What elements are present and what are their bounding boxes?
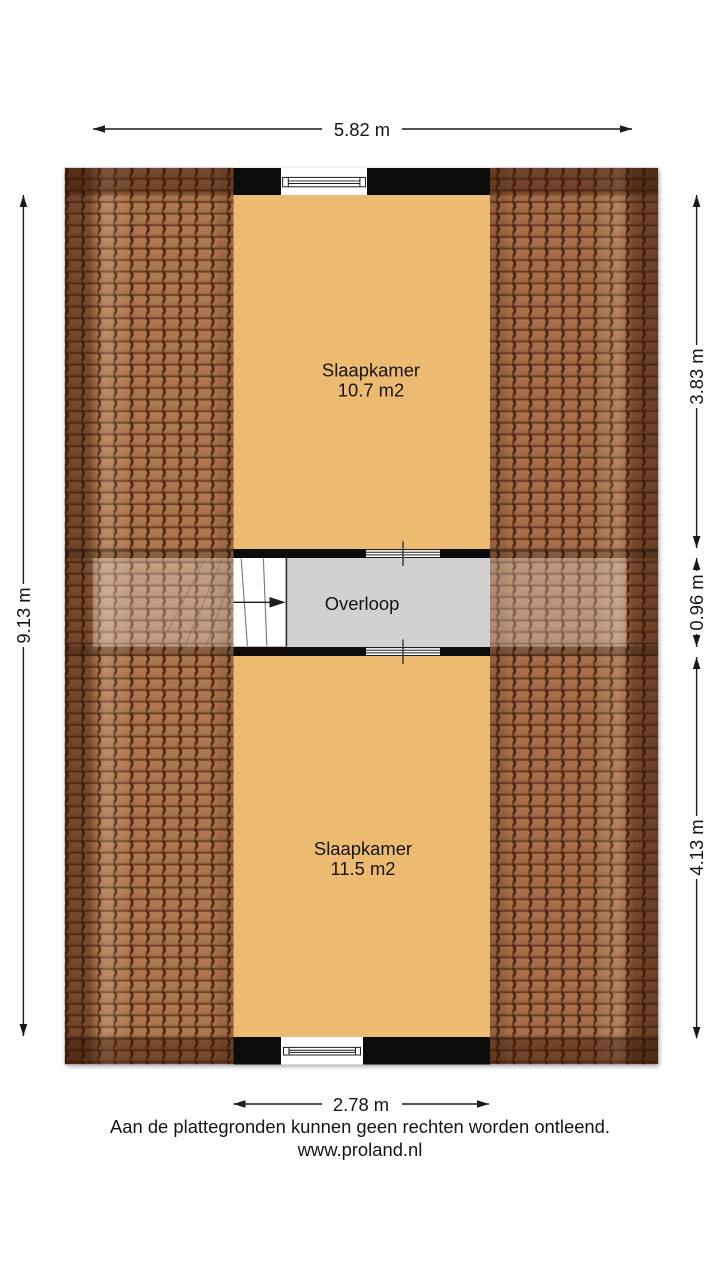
svg-text:5.82 m: 5.82 m — [334, 119, 390, 140]
svg-text:10.7 m2: 10.7 m2 — [338, 380, 404, 401]
svg-text:Slaapkamer: Slaapkamer — [314, 838, 412, 859]
svg-text:0.96 m: 0.96 m — [686, 574, 707, 630]
svg-text:9.13 m: 9.13 m — [13, 587, 34, 643]
svg-text:2.78 m: 2.78 m — [333, 1094, 389, 1115]
svg-text:www.proland.nl: www.proland.nl — [297, 1139, 423, 1160]
svg-text:3.83 m: 3.83 m — [686, 348, 707, 404]
svg-text:4.13 m: 4.13 m — [686, 819, 707, 875]
svg-text:Aan de plattegronden kunnen ge: Aan de plattegronden kunnen geen rechten… — [110, 1116, 610, 1137]
svg-text:11.5 m2: 11.5 m2 — [330, 858, 395, 879]
svg-text:Overloop: Overloop — [325, 593, 400, 614]
svg-text:Slaapkamer: Slaapkamer — [322, 360, 420, 381]
